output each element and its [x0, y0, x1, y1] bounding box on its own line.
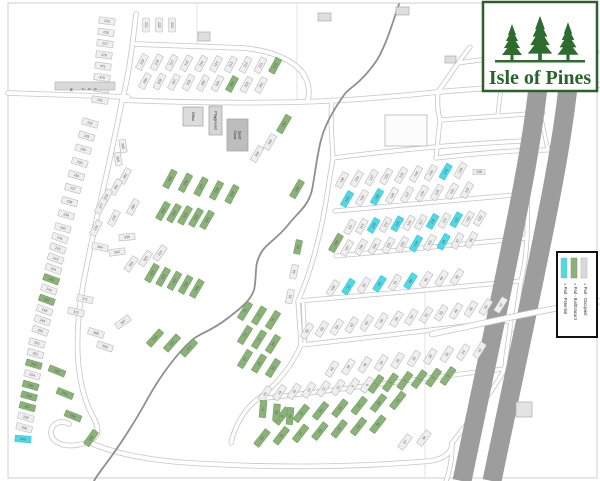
lot-244: 244: [45, 263, 62, 275]
lot-19: 19: [370, 394, 387, 413]
lot-75: 75: [265, 310, 281, 330]
lot-90: 90: [357, 277, 371, 294]
lot-232: 232: [81, 118, 98, 129]
svg-text:226: 226: [103, 30, 109, 35]
lot-226: 226: [98, 28, 115, 37]
lot-212: 212: [239, 56, 252, 73]
lot-13: 13: [312, 401, 329, 420]
lot-131: 131: [445, 183, 459, 200]
legend-label-built-vacant: = Pad - Built/Vacant: [573, 283, 578, 321]
lot-121: 121: [450, 212, 463, 228]
lot-249: 249: [34, 315, 51, 327]
lot-119: 119: [426, 213, 439, 229]
lot-69: 69: [265, 334, 281, 354]
lot-211: 211: [254, 57, 267, 74]
lot-23: 23: [254, 429, 271, 448]
lot-82: 82: [450, 268, 464, 285]
lot-27: 27: [292, 424, 309, 443]
lot-30: 30: [407, 350, 421, 367]
lot-129: 129: [385, 187, 399, 204]
lot-97: 97: [451, 232, 465, 249]
lot-239: 239: [58, 209, 75, 220]
lot-223: 223: [169, 18, 176, 32]
lot-114: 114: [379, 216, 392, 232]
lot-109: 109: [328, 233, 343, 253]
lot-15: 15: [331, 399, 348, 418]
lot-149: 149: [326, 279, 340, 296]
lot-307: 307: [115, 315, 132, 330]
lot-252: 252: [27, 348, 44, 359]
lot-88: 88: [404, 272, 418, 289]
lot-203: 203: [225, 75, 238, 92]
lot-259: 259: [16, 422, 33, 433]
lot-215: 215: [195, 55, 208, 72]
lot-263: 263: [56, 387, 74, 399]
lot-11: 11: [293, 404, 310, 423]
park-site-map: 2252262272283713792302312322332342352362…: [0, 0, 600, 481]
lot-31: 31: [331, 419, 348, 438]
svg-text:61: 61: [288, 414, 292, 418]
svg-text:222: 222: [157, 22, 161, 28]
lot-46: 46: [464, 300, 478, 317]
lot-64: 64: [330, 318, 344, 335]
lot-32: 32: [391, 352, 405, 369]
lot-238: 238: [61, 196, 78, 207]
lot-122: 122: [461, 211, 474, 227]
svg-text:302: 302: [114, 250, 120, 255]
lot-276: 276: [89, 219, 102, 236]
lot-257: 257: [19, 401, 36, 412]
lot-314: 314: [153, 245, 168, 262]
lot-260: 260: [15, 435, 31, 443]
lot-125: 125: [460, 182, 474, 199]
lot-246: 246: [40, 284, 57, 296]
lot-139: 139: [454, 162, 468, 179]
lot-63: 63: [265, 358, 281, 378]
lot-26: 26: [440, 346, 454, 363]
lot-339: 339: [225, 184, 240, 204]
lot-303: 303: [124, 256, 139, 273]
lot-115: 115: [438, 212, 451, 228]
lot-67: 67: [237, 349, 253, 369]
lot-36: 36: [358, 356, 372, 373]
lot-210: 210: [269, 57, 282, 74]
lot-217: 217: [165, 54, 178, 71]
lot-137: 137: [365, 169, 379, 186]
structure: [318, 13, 331, 21]
legend-chip-built-vacant: [571, 258, 577, 278]
lot-235: 235: [71, 157, 88, 168]
legend-label-potential: = Pad - Potential: [563, 283, 568, 314]
lot-61: 61: [286, 407, 294, 425]
lot-319: 319: [189, 279, 204, 299]
svg-text:225: 225: [104, 19, 110, 24]
lot-73: 73: [237, 325, 253, 345]
lot-250: 250: [32, 325, 49, 337]
lot-304: 304: [91, 242, 108, 252]
lot-360: 360: [276, 114, 291, 134]
lot-83: 83: [289, 264, 298, 279]
lot-213: 213: [224, 56, 237, 73]
lot-277: 277: [94, 197, 107, 214]
lot-237: 237: [64, 183, 81, 194]
building-office: Office: [183, 107, 203, 126]
lot-92: 92: [342, 278, 356, 295]
svg-text:59: 59: [275, 410, 279, 414]
lot-116: 116: [402, 215, 415, 231]
lot-120: 120: [473, 210, 486, 226]
map-page: 2252262272283713792302312322332342352362…: [0, 0, 600, 481]
svg-text:SportCourt: SportCourt: [233, 131, 242, 140]
svg-text:330: 330: [124, 235, 130, 239]
legend-chip-occupied: [581, 258, 587, 278]
lot-130: 130: [355, 189, 369, 206]
lot-118: 118: [391, 216, 404, 232]
lot-136: 136: [335, 171, 349, 188]
building-sport-court: SportCourt: [227, 119, 248, 151]
lot-108: 108: [367, 217, 380, 233]
svg-text:379: 379: [99, 75, 105, 80]
svg-text:371: 371: [100, 64, 106, 69]
lot-134: 134: [350, 170, 364, 187]
lot-308: 308: [87, 327, 104, 338]
lot-66: 66: [315, 320, 329, 337]
lot-127: 127: [400, 186, 414, 203]
lot-241: 241: [51, 232, 68, 244]
lot-262: 262: [48, 365, 66, 377]
lot-204: 204: [211, 75, 224, 92]
lot-265: 265: [114, 152, 123, 166]
map-legend: = Pad - Potential = Pad - Built/Vacant =…: [557, 252, 597, 337]
lot-60: 60: [360, 314, 374, 331]
lot-57: 57: [259, 400, 267, 418]
lot-242: 242: [49, 243, 66, 255]
lot-54: 54: [404, 308, 418, 325]
lot-207: 207: [167, 73, 180, 90]
svg-text:148: 148: [476, 170, 482, 174]
lot-56: 56: [389, 310, 403, 327]
lot-17: 17: [351, 396, 368, 415]
building-playground: Playground: [209, 106, 222, 135]
lot-222: 222: [156, 18, 163, 32]
lot-228: 228: [96, 51, 113, 60]
lot-355: 355: [263, 133, 277, 150]
lot-84: 84: [435, 270, 449, 287]
lot-85: 85: [293, 239, 302, 254]
lot-318: 318: [178, 275, 193, 295]
lot-302: 302: [109, 248, 126, 257]
lot-350: 350: [289, 179, 304, 199]
lot-256: 256: [20, 391, 37, 402]
lot-379: 379: [94, 73, 111, 82]
lot-208: 208: [153, 73, 166, 90]
lot-255: 255: [22, 380, 39, 391]
lot-266: 266: [119, 139, 128, 153]
lot-236: 236: [68, 170, 85, 181]
lot-24: 24: [456, 344, 470, 361]
lot-227: 227: [97, 39, 114, 48]
lot-335: 335: [163, 169, 178, 189]
svg-text:228: 228: [101, 53, 107, 58]
lot-253: 253: [25, 359, 42, 370]
lot-310: 310: [146, 329, 164, 347]
svg-text:221: 221: [144, 22, 148, 28]
lot-201: 201: [254, 76, 267, 93]
park-logo: Isle of Pines: [483, 2, 597, 91]
lot-143: 143: [439, 163, 453, 180]
lot-258: 258: [17, 412, 34, 423]
lot-315: 315: [144, 263, 159, 283]
lot-133: 133: [394, 167, 408, 184]
lot-216: 216: [180, 55, 193, 72]
lot-58: 58: [375, 312, 389, 329]
lot-225: 225: [99, 17, 116, 26]
structure: [396, 7, 409, 15]
lot-62: 62: [345, 316, 359, 333]
lot-33: 33: [350, 417, 367, 436]
structure: [198, 32, 210, 41]
lot-234: 234: [75, 144, 92, 155]
lot-245: 245: [43, 273, 60, 285]
lot-52: 52: [419, 306, 433, 323]
lot-38: 38: [341, 358, 355, 375]
lot-278: 278: [107, 209, 120, 226]
lot-330: 330: [119, 233, 136, 241]
lot-132: 132: [340, 190, 354, 207]
lot-86: 86: [419, 271, 433, 288]
lot-77: 77: [251, 306, 267, 326]
svg-text:57: 57: [261, 407, 265, 411]
lot-221: 221: [143, 18, 150, 32]
lot-117: 117: [414, 214, 427, 230]
lot-214: 214: [209, 55, 222, 72]
lot-95: 95: [464, 231, 478, 248]
lot-140: 140: [424, 164, 438, 181]
lot-356: 356: [250, 145, 264, 162]
lot-113: 113: [355, 218, 368, 234]
lot-71: 71: [251, 330, 267, 350]
lot-205: 205: [196, 74, 209, 91]
lot-148: 148: [473, 169, 485, 175]
lot-311: 311: [163, 334, 181, 352]
lot-209: 209: [138, 72, 151, 89]
lot-219: 219: [135, 53, 148, 70]
lot-35: 35: [369, 415, 386, 434]
legend-chip-potential: [561, 258, 567, 278]
lot-21: 21: [389, 391, 406, 410]
lot-218: 218: [150, 54, 163, 71]
lot-317: 317: [167, 271, 182, 291]
lot-316: 316: [156, 267, 171, 287]
svg-text:223: 223: [170, 22, 174, 28]
lot-254: 254: [24, 369, 41, 380]
lot-371: 371: [95, 62, 112, 71]
lot-146: 146: [409, 165, 423, 182]
svg-text:231: 231: [97, 98, 103, 103]
lot-48: 48: [449, 302, 463, 319]
lot-25: 25: [273, 426, 290, 445]
lot-338: 338: [209, 180, 224, 200]
lot-248: 248: [36, 304, 53, 316]
lot-39: 39: [417, 430, 432, 447]
logo-title: Isle of Pines: [489, 67, 591, 89]
lot-29: 29: [311, 422, 328, 441]
lot-240: 240: [54, 222, 71, 233]
structure: [516, 402, 532, 417]
lot-251: 251: [28, 338, 45, 349]
lot-34: 34: [374, 354, 388, 371]
lot-247: 247: [38, 294, 55, 306]
lot-37: 37: [398, 434, 413, 451]
lot-305: 305: [138, 250, 153, 267]
lot-65: 65: [251, 354, 267, 374]
svg-text:Playground: Playground: [213, 111, 217, 129]
lot-126: 126: [415, 185, 429, 202]
svg-text:Office: Office: [191, 112, 195, 121]
lot-91: 91: [388, 274, 402, 291]
svg-text:227: 227: [102, 41, 108, 46]
lot-50: 50: [434, 304, 448, 321]
lot-233: 233: [78, 131, 95, 142]
structure: [445, 56, 456, 63]
lot-28: 28: [423, 348, 437, 365]
lot-128: 128: [430, 184, 444, 201]
lot-16: 16: [287, 383, 302, 400]
lot-280: 280: [126, 198, 139, 215]
lot-40: 40: [325, 360, 339, 377]
lot-309: 309: [96, 341, 113, 352]
svg-text:260: 260: [20, 437, 26, 441]
lot-202: 202: [240, 76, 253, 93]
structure: [385, 115, 427, 146]
lot-111: 111: [343, 219, 356, 235]
lot-243: 243: [47, 253, 64, 265]
lot-135: 135: [380, 168, 394, 185]
legend-label-occupied: = Pad - Occupied: [583, 283, 588, 316]
lot-59: 59: [273, 404, 281, 422]
lot-337: 337: [194, 177, 209, 197]
lot-81: 81: [285, 289, 294, 304]
lot-138: 138: [370, 188, 384, 205]
lot-89: 89: [373, 275, 387, 292]
lot-206: 206: [182, 74, 195, 91]
lot-336: 336: [178, 173, 193, 193]
